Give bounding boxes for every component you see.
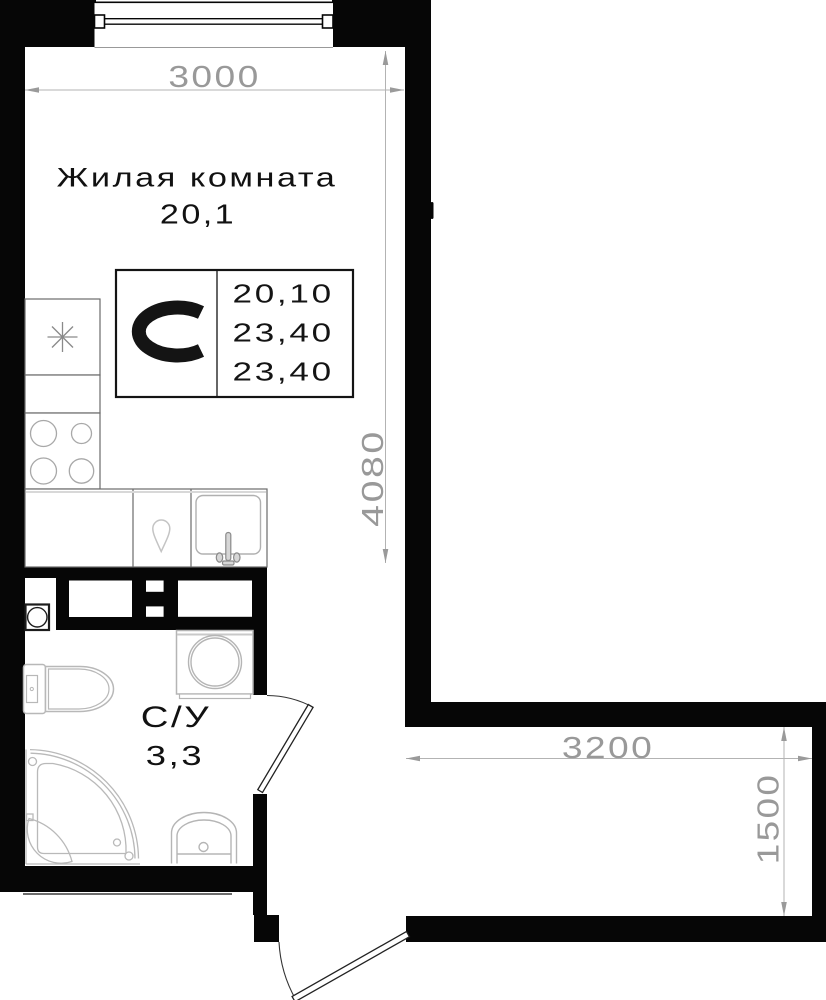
svg-text:20,1: 20,1	[160, 198, 236, 229]
svg-text:3,3: 3,3	[146, 740, 204, 771]
svg-text:23,40: 23,40	[233, 357, 334, 386]
svg-text:3200: 3200	[562, 731, 654, 765]
svg-text:4080: 4080	[355, 429, 390, 527]
svg-text:20,10: 20,10	[233, 279, 334, 308]
svg-text:С/У: С/У	[141, 701, 211, 734]
svg-text:3000: 3000	[168, 60, 260, 94]
svg-text:1500: 1500	[751, 773, 786, 865]
svg-text:23,40: 23,40	[233, 318, 334, 347]
svg-text:Жилая комната: Жилая комната	[57, 162, 338, 193]
